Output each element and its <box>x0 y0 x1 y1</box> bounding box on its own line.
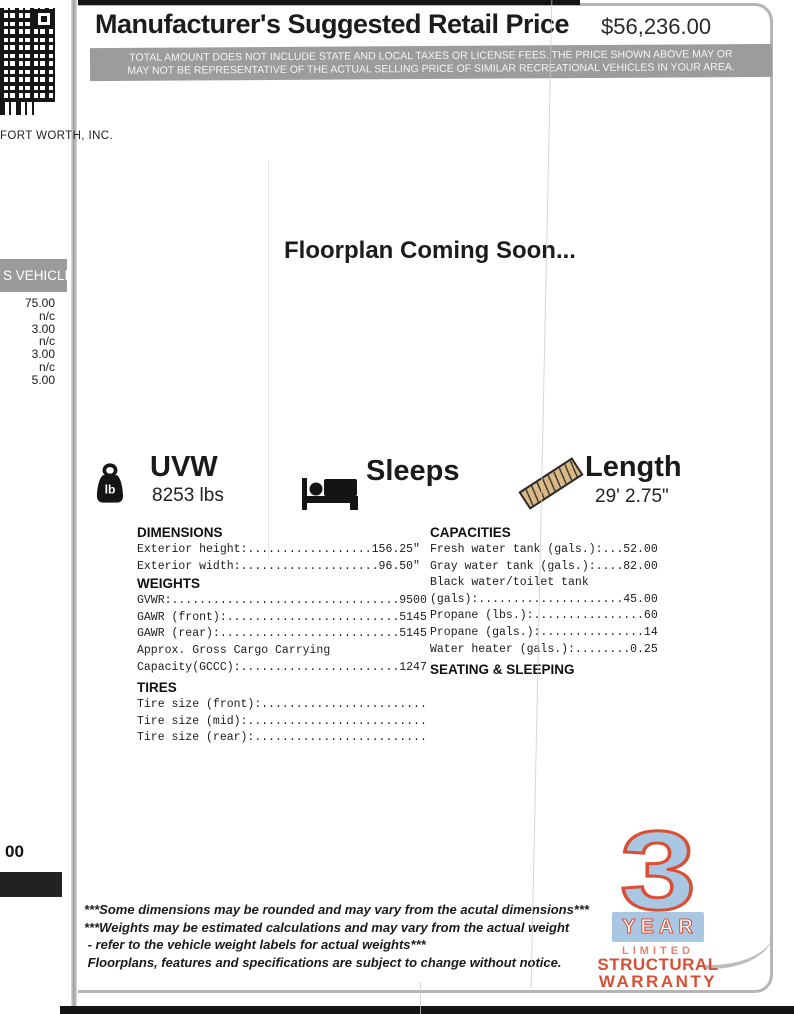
warranty-structural-label: STRUCTURAL <box>597 957 719 973</box>
scan-bottom-bar <box>60 1006 794 1014</box>
qr-finder-pattern <box>34 9 54 29</box>
footnote-line: - refer to the vehicle weight labels for… <box>84 936 589 954</box>
spec-column-right: CAPACITIES Fresh water tank (gals.):...5… <box>430 524 735 679</box>
warranty-warranty-label: WARRANTY <box>597 973 719 990</box>
page-edge-shadow <box>71 0 77 1014</box>
side-price-item: n/c <box>0 310 55 323</box>
side-price-item: n/c <box>0 361 55 374</box>
spec-row: GAWR (front):.........................51… <box>137 610 442 627</box>
spec-row: Capacity(GCCC):.......................12… <box>137 660 442 677</box>
spec-row: Exterior height:..................156.25… <box>137 542 442 559</box>
warranty-number: 3 <box>584 826 733 916</box>
side-price-item: 5.00 <box>0 374 55 387</box>
qr-code <box>0 8 55 102</box>
weight-icon: lb <box>96 461 124 510</box>
spec-row: Water heater (gals.):........0.25 <box>430 642 735 659</box>
scan-fold-line <box>268 160 269 560</box>
msrp-sheet: Manufacturer's Suggested Retail Price $5… <box>0 0 794 1014</box>
footnotes: ***Some dimensions may be rounded and ma… <box>84 901 589 971</box>
price-disclaimer: TOTAL AMOUNT DOES NOT INCLUDE STATE AND … <box>90 44 772 81</box>
spec-column-left: DIMENSIONS Exterior height:.............… <box>137 524 442 747</box>
side-price-item: 75.00 <box>0 297 55 310</box>
length-label: Length <box>585 451 682 484</box>
dimensions-heading: DIMENSIONS <box>137 524 442 542</box>
tires-heading: TIRES <box>137 679 442 697</box>
seating-heading: SEATING & SLEEPING <box>430 661 735 679</box>
spec-row: Approx. Gross Cargo Carrying <box>137 643 442 660</box>
footnote-line: ***Weights may be estimated calculations… <box>84 919 589 937</box>
scan-top-bar <box>78 0 580 5</box>
dealer-name: FORT WORTH, INC. <box>0 130 113 142</box>
spec-row: Propane (gals.):...............14 <box>430 625 735 642</box>
side-partial-total: 00 <box>5 842 24 862</box>
msrp-price-value: $56,236.00 <box>601 14 711 40</box>
weight-unit-label: lb <box>105 482 116 496</box>
side-redaction-bar <box>0 872 62 897</box>
length-value: 29' 2.75" <box>595 486 669 508</box>
spec-row: Exterior width:....................96.50… <box>137 559 442 576</box>
footnote-line: Floorplans, features and specifications … <box>84 954 589 972</box>
footnote-line: ***Some dimensions may be rounded and ma… <box>84 901 589 919</box>
uvw-value: 8253 lbs <box>152 485 224 507</box>
spec-row: Black water/toilet tank <box>430 575 735 592</box>
capacities-heading: CAPACITIES <box>430 524 735 542</box>
uvw-label: UVW <box>150 451 218 484</box>
spec-row: Tire size (rear):.......................… <box>137 730 442 747</box>
spec-row: Propane (lbs.):................60 <box>430 608 735 625</box>
scan-fold-line <box>420 982 421 1014</box>
side-price-list: 75.00 n/c 3.00 n/c 3.00 n/c 5.00 <box>0 297 55 387</box>
vehicle-banner: S VEHICLE <box>0 259 67 292</box>
warranty-year-label: YEAR <box>612 912 704 942</box>
spec-row: Tire size (front):......................… <box>137 697 442 714</box>
spec-row: GAWR (rear):..........................51… <box>137 626 442 643</box>
floorplan-notice: Floorplan Coming Soon... <box>200 237 660 265</box>
qr-code-fragment <box>0 100 34 115</box>
spec-row: Fresh water tank (gals.):...52.00 <box>430 542 735 559</box>
spec-row: (gals):.....................45.00 <box>430 592 735 609</box>
bed-icon <box>302 466 360 515</box>
spec-row: Tire size (mid):........................… <box>137 714 442 731</box>
sleeps-label: Sleeps <box>366 455 460 488</box>
spec-row: Gray water tank (gals.):....82.00 <box>430 559 735 576</box>
spec-row: GVWR:.................................95… <box>137 593 442 610</box>
page-title: Manufacturer's Suggested Retail Price <box>95 9 569 40</box>
weights-heading: WEIGHTS <box>137 575 442 593</box>
warranty-logo: 3 YEAR LIMITED STRUCTURAL WARRANTY <box>597 826 719 990</box>
